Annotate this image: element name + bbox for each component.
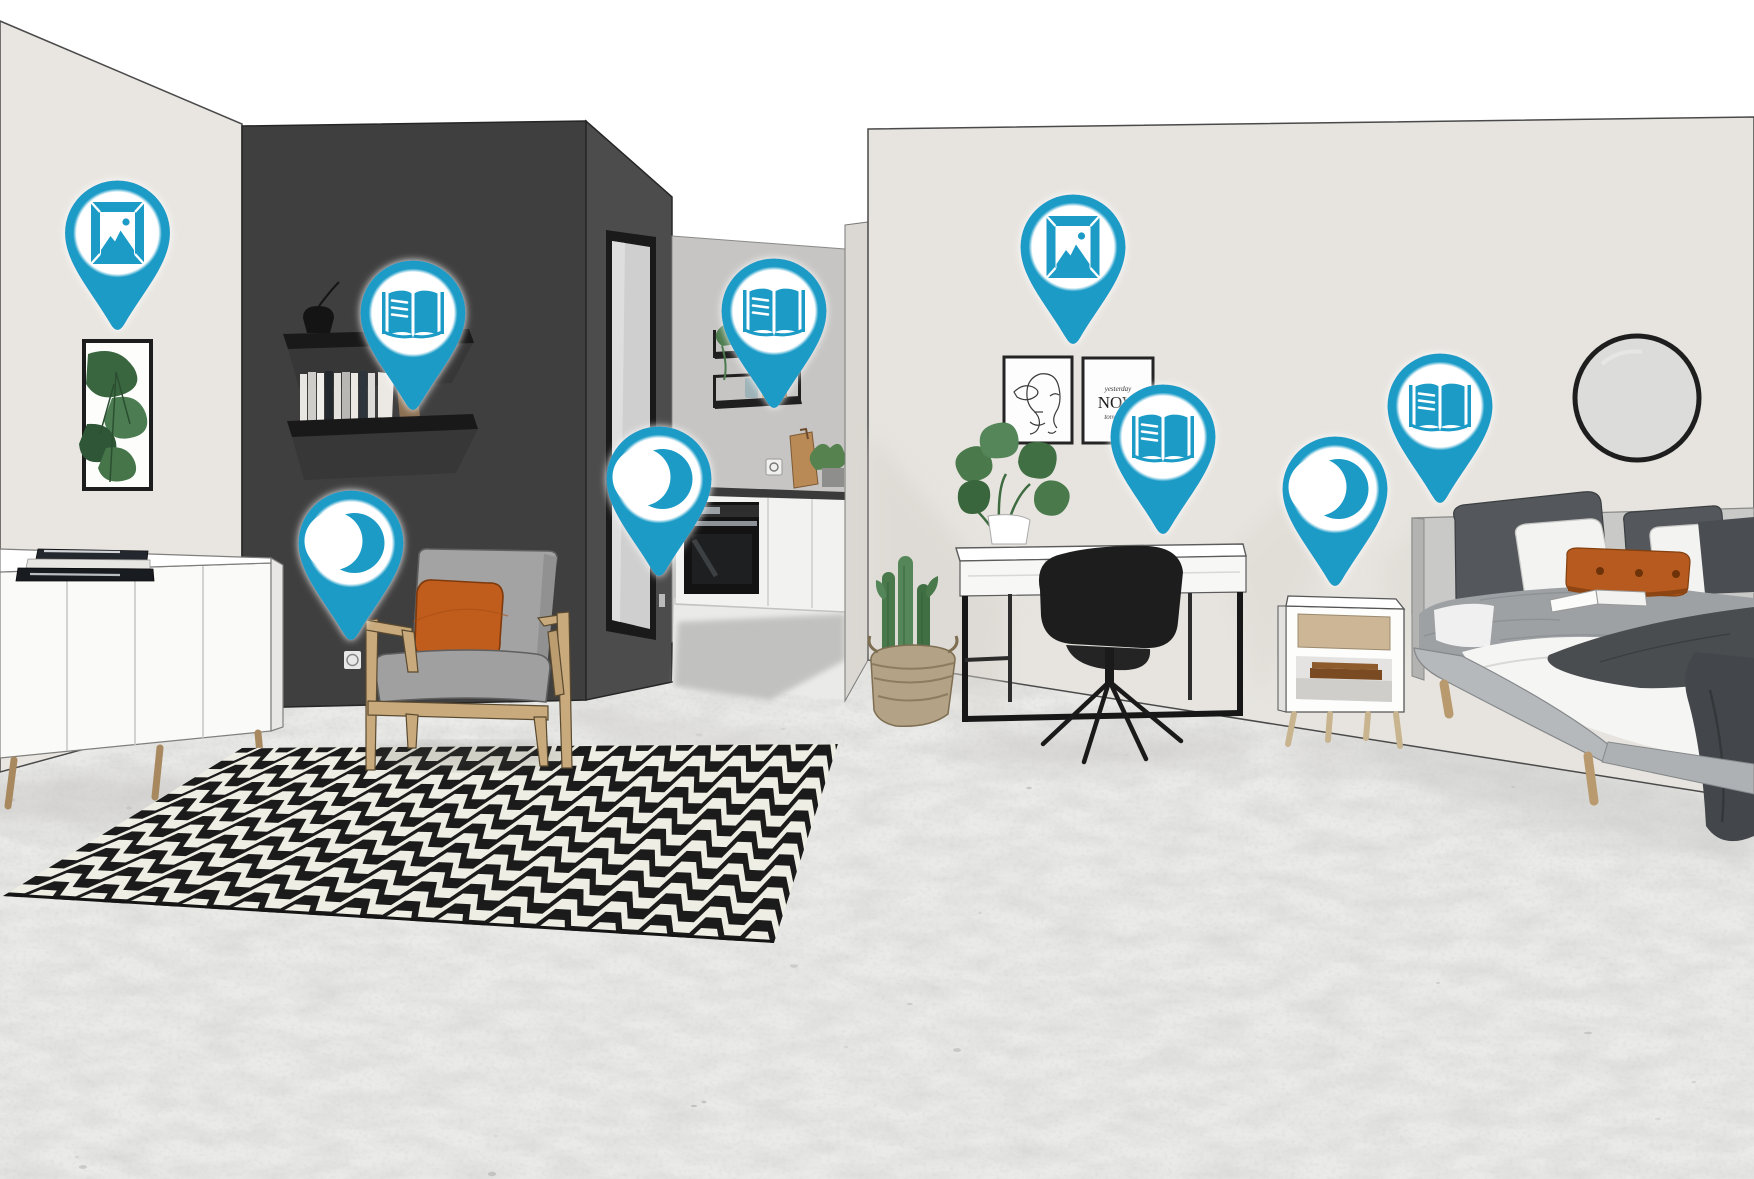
svg-text:yesterday: yesterday [1104, 385, 1132, 393]
